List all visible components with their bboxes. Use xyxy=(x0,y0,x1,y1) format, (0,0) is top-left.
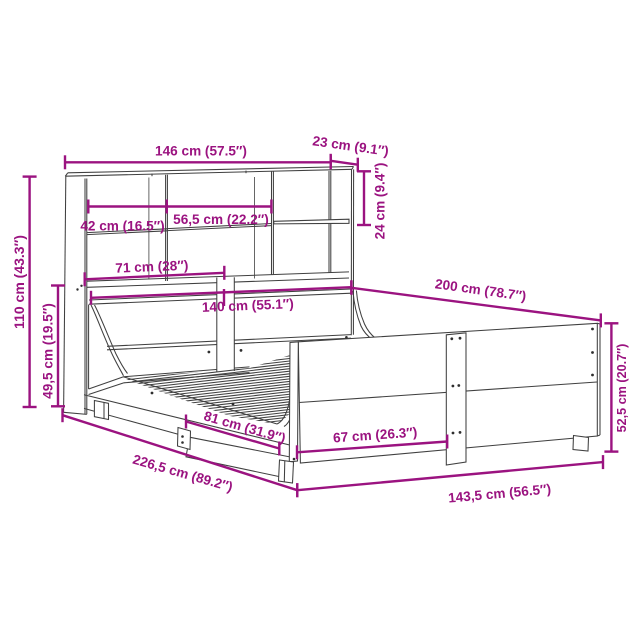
svg-text:24 cm (9.4″): 24 cm (9.4″) xyxy=(373,163,388,240)
svg-text:49,5 cm (19.5″): 49,5 cm (19.5″) xyxy=(41,303,56,399)
svg-text:42 cm (16.5″): 42 cm (16.5″) xyxy=(80,219,164,234)
svg-text:110 cm (43.3″): 110 cm (43.3″) xyxy=(11,235,27,329)
svg-text:71 cm (28″): 71 cm (28″) xyxy=(115,258,189,276)
svg-text:146 cm (57.5″): 146 cm (57.5″) xyxy=(155,144,247,159)
svg-text:52,5 cm (20.7″): 52,5 cm (20.7″) xyxy=(615,344,629,433)
svg-text:56,5 cm (22.2″): 56,5 cm (22.2″) xyxy=(173,212,269,227)
